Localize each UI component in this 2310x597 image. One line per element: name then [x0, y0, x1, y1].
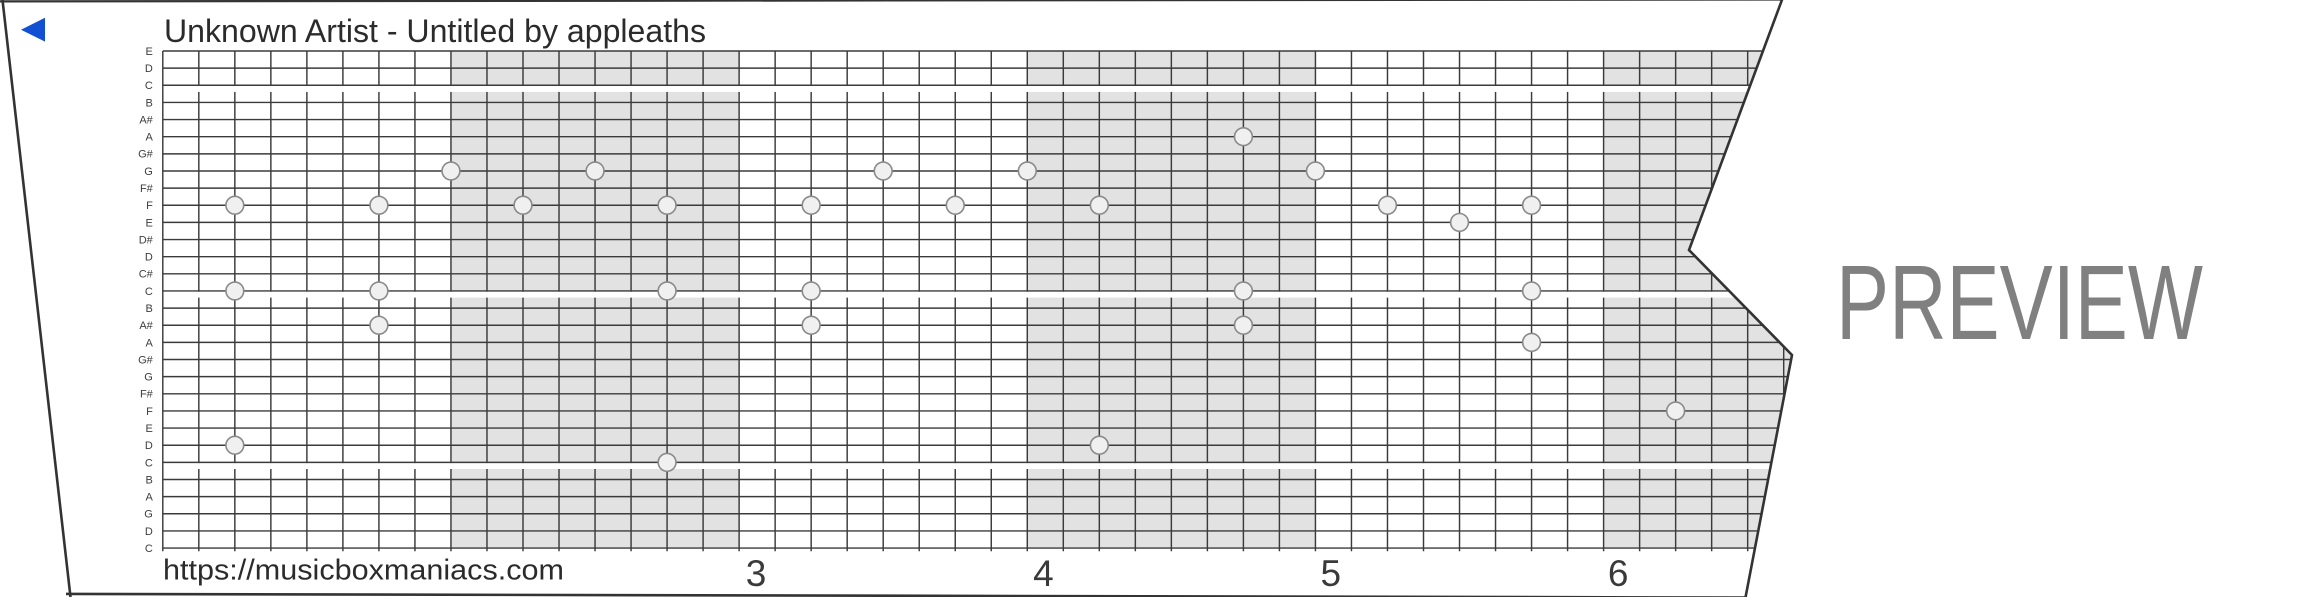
svg-text:C: C [145, 80, 153, 92]
svg-text:Unknown Artist - Untitled by a: Unknown Artist - Untitled by appleaths [164, 13, 706, 49]
svg-text:G#: G# [138, 149, 154, 161]
svg-text:C#: C# [139, 269, 154, 281]
svg-text:A#: A# [139, 114, 153, 126]
svg-text:E: E [145, 46, 152, 58]
svg-text:F#: F# [140, 183, 154, 195]
svg-text:D: D [145, 63, 153, 75]
svg-text:D: D [145, 526, 153, 538]
svg-text:C: C [145, 286, 153, 298]
svg-text:6: 6 [1608, 553, 1629, 594]
svg-text:3: 3 [746, 553, 767, 594]
svg-text:A#: A# [139, 320, 153, 332]
svg-text:G: G [144, 166, 153, 178]
svg-text:G: G [144, 372, 153, 384]
svg-text:A: A [145, 132, 153, 144]
svg-text:E: E [145, 217, 152, 229]
svg-text:5: 5 [1321, 553, 1342, 594]
svg-text:D: D [145, 252, 153, 264]
svg-text:B: B [145, 97, 152, 109]
svg-text:F: F [146, 200, 153, 212]
svg-text:C: C [145, 457, 153, 469]
svg-text:B: B [145, 474, 152, 486]
svg-text:F#: F# [140, 389, 154, 401]
svg-text:D#: D# [139, 234, 154, 246]
svg-text:F: F [146, 406, 153, 418]
svg-text:A: A [145, 337, 153, 349]
svg-text:E: E [145, 423, 152, 435]
svg-text:PREVIEW: PREVIEW [1836, 244, 2203, 362]
svg-text:https://musicboxmaniacs.com: https://musicboxmaniacs.com [163, 555, 564, 587]
svg-text:A: A [145, 492, 153, 504]
svg-text:C: C [145, 543, 153, 555]
svg-text:G#: G# [138, 354, 154, 366]
svg-text:B: B [145, 303, 152, 315]
svg-text:G: G [144, 509, 153, 521]
svg-text:4: 4 [1033, 553, 1054, 594]
svg-text:D: D [145, 440, 153, 452]
